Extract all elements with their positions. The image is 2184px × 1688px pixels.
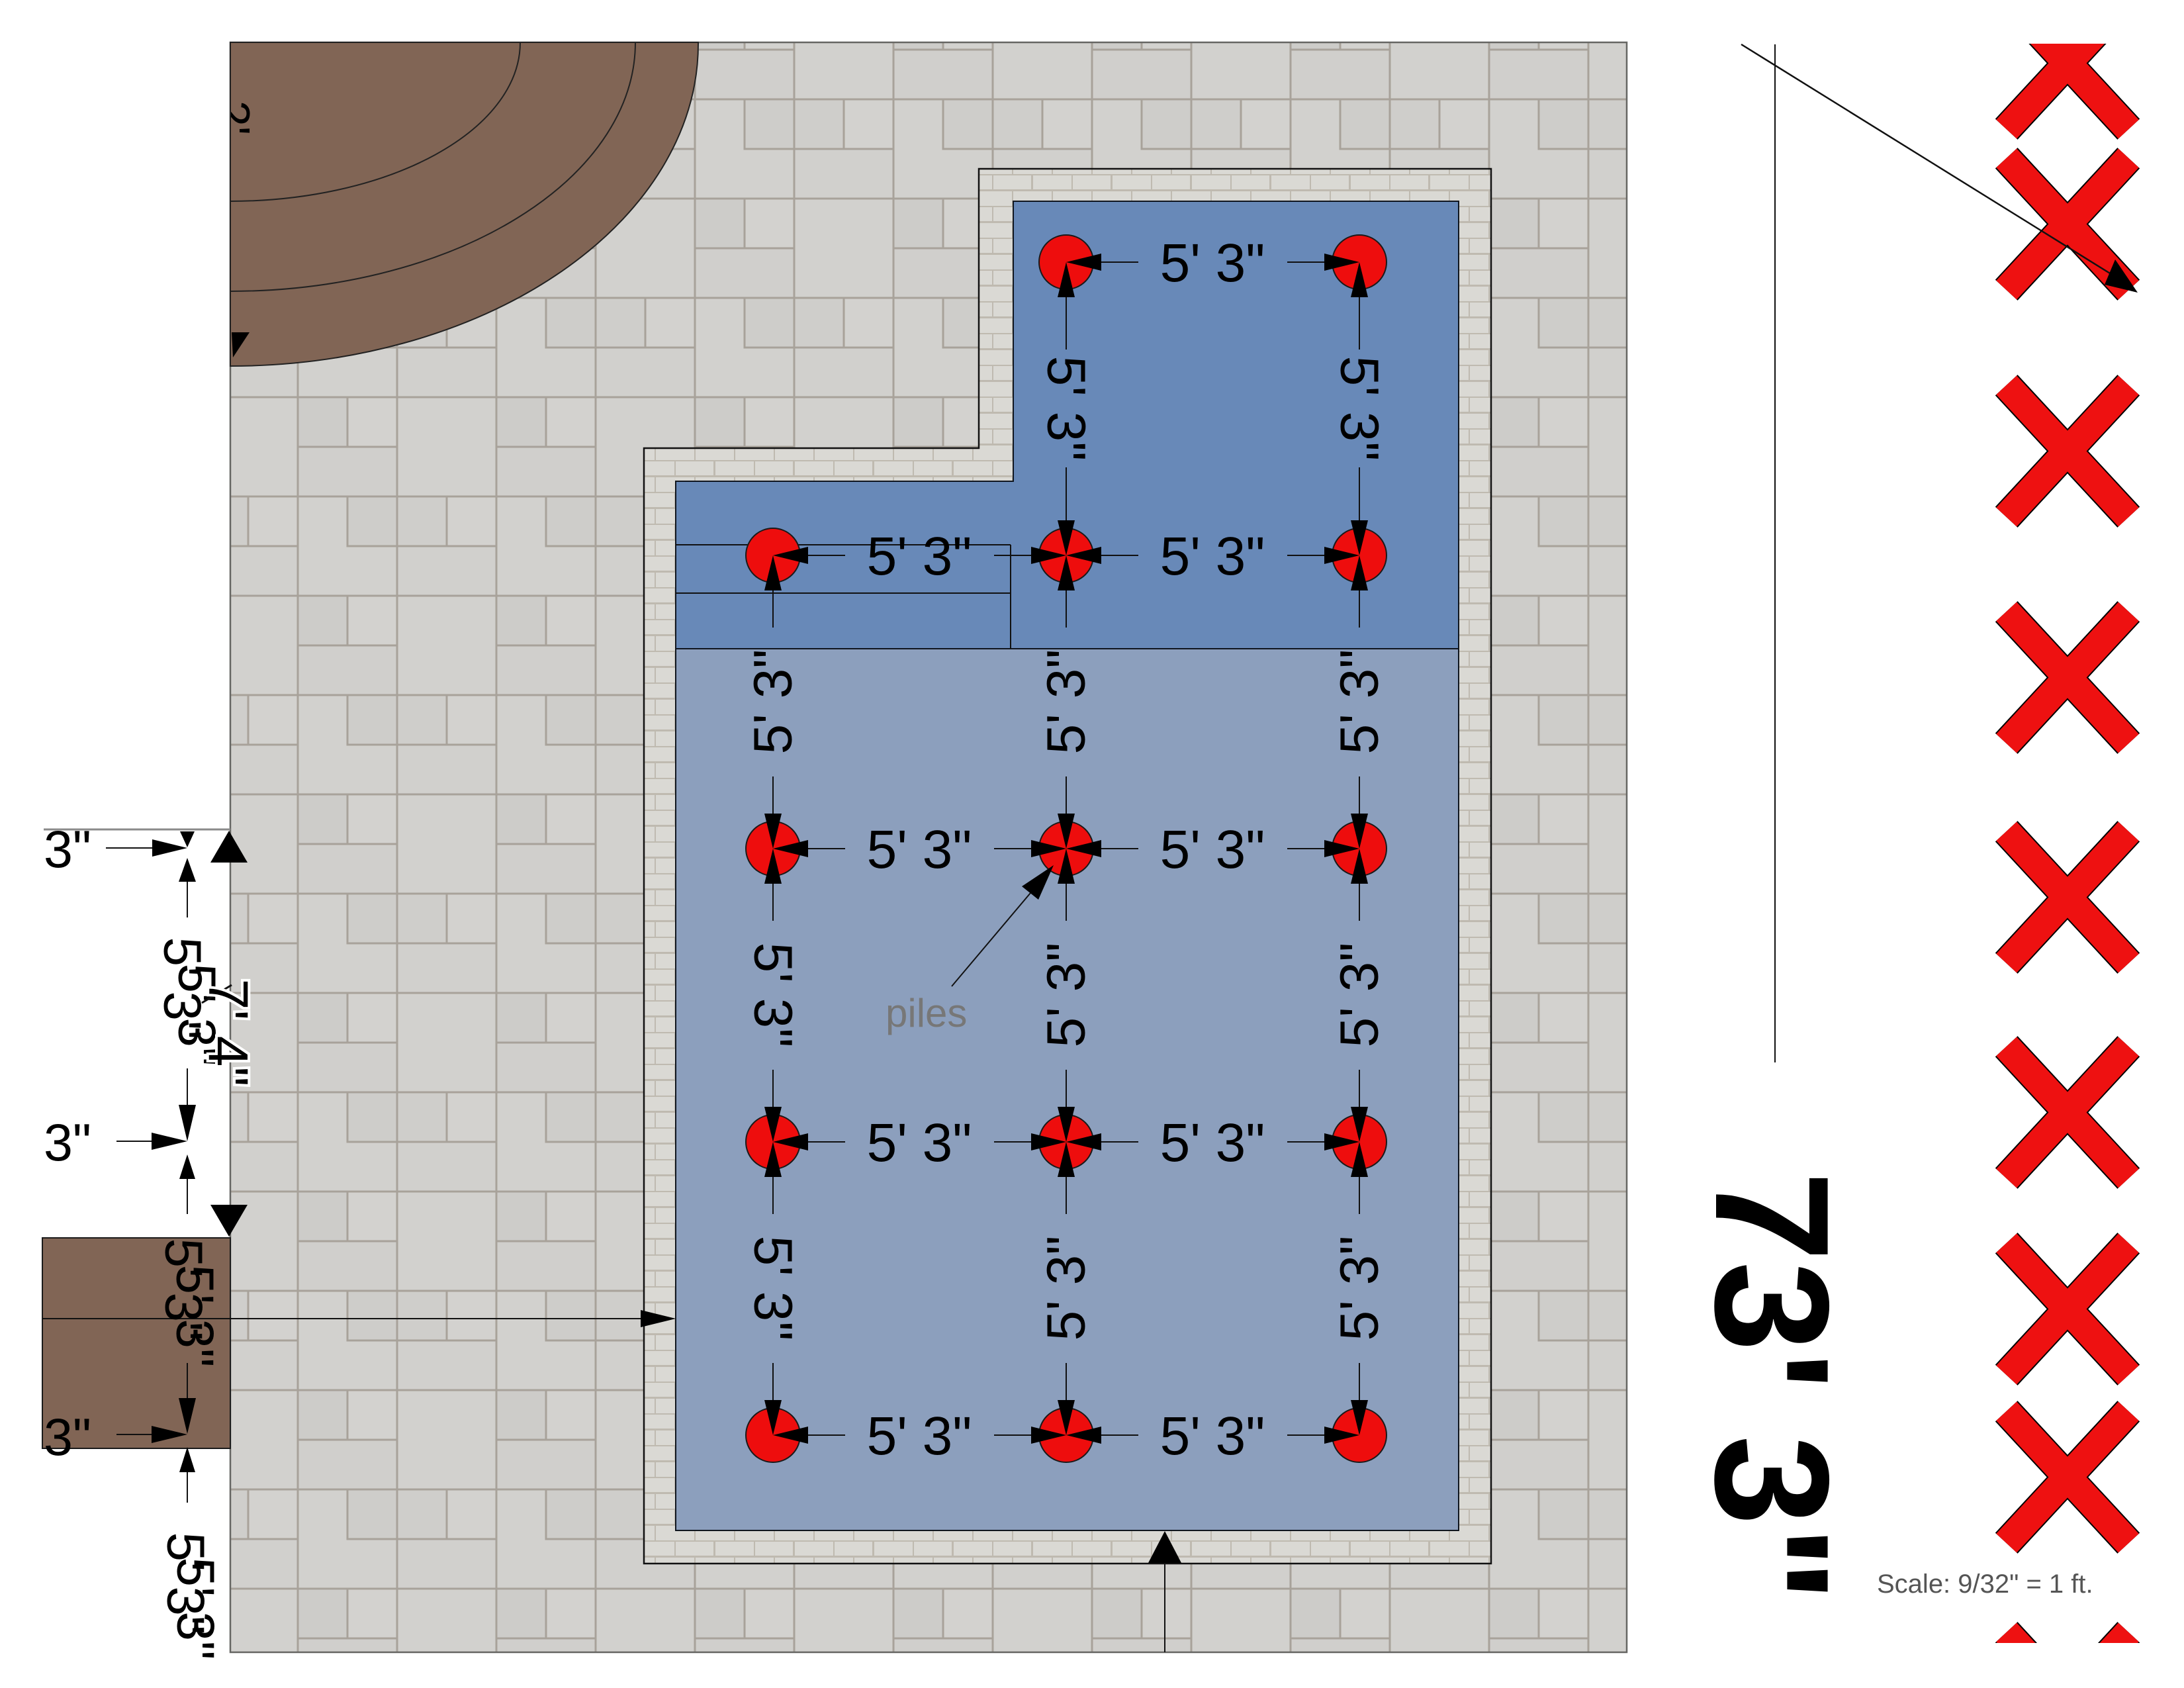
svg-text:5' 3": 5' 3" bbox=[743, 649, 803, 755]
svg-text:5' 3": 5' 3" bbox=[867, 1406, 972, 1466]
svg-text:5' 3": 5' 3" bbox=[1036, 1236, 1097, 1341]
svg-text:5' 3": 5' 3" bbox=[1036, 943, 1097, 1048]
svg-text:5' 3": 5' 3" bbox=[1330, 356, 1390, 461]
svg-text:3": 3" bbox=[44, 820, 91, 878]
svg-text:3": 3" bbox=[44, 1407, 91, 1466]
svg-text:5' 3": 5' 3" bbox=[1160, 526, 1265, 586]
svg-text:5' 3": 5' 3" bbox=[1160, 1406, 1265, 1466]
svg-text:5' 3": 5' 3" bbox=[1330, 1236, 1390, 1341]
svg-text:Scale: 9/32" = 1 ft.: Scale: 9/32" = 1 ft. bbox=[1877, 1570, 2093, 1599]
svg-text:73' 3": 73' 3" bbox=[1682, 1171, 1863, 1602]
svg-text:5' 3": 5' 3" bbox=[743, 1236, 803, 1341]
svg-text:5' 3": 5' 3" bbox=[1330, 943, 1390, 1048]
svg-text:5' 3": 5' 3" bbox=[743, 943, 803, 1048]
svg-text:3": 3" bbox=[44, 1113, 91, 1172]
svg-text:5' 3": 5' 3" bbox=[867, 526, 972, 586]
svg-text:5' 3": 5' 3" bbox=[1160, 233, 1265, 293]
svg-text:5' 3": 5' 3" bbox=[867, 820, 972, 880]
svg-text:5' 3": 5' 3" bbox=[1036, 356, 1097, 461]
svg-text:5' 3": 5' 3" bbox=[1160, 820, 1265, 880]
svg-text:5' 3": 5' 3" bbox=[867, 1113, 972, 1173]
svg-text:5' 3": 5' 3" bbox=[1330, 649, 1390, 755]
svg-text:5' 3": 5' 3" bbox=[166, 1265, 225, 1368]
svg-text:5' 3": 5' 3" bbox=[1160, 1113, 1265, 1173]
svg-text:7' 4": 7' 4" bbox=[197, 979, 259, 1087]
svg-text:5' 3": 5' 3" bbox=[167, 1558, 226, 1660]
svg-text:piles: piles bbox=[886, 991, 967, 1035]
svg-text:5' 3": 5' 3" bbox=[1036, 649, 1097, 755]
